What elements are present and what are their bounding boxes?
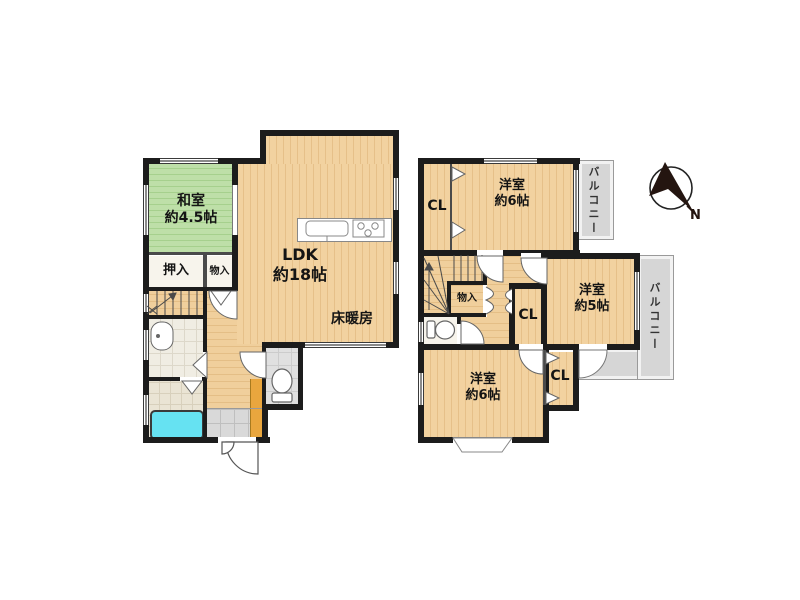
toilet-icon-1f (272, 369, 292, 402)
label-yoshitsu-top: 洋室約6帖 (462, 178, 562, 210)
door-arc-yoshitsu-top (477, 256, 503, 282)
bifold-door-monoire-2f (486, 287, 494, 314)
door-wedge-bathroom (182, 381, 202, 394)
door-arc-toilet-2f (461, 321, 484, 344)
label-oshiire: 押入 (149, 263, 203, 279)
compass-icon: N (649, 162, 701, 223)
door-arc-balcony (579, 350, 607, 378)
label-closet-bottom: CL (545, 368, 575, 385)
washbasin-icon (151, 322, 173, 350)
compass-north-label: N (690, 208, 701, 223)
kitchen-sink-icon (306, 221, 348, 241)
toilet-icon-2f (427, 321, 455, 339)
vector-overlay: N (0, 0, 800, 600)
door-arc-yoshitsu-mid (521, 258, 547, 284)
label-washitsu: 和室約4.5帖 (150, 193, 232, 227)
label-yoshitsu-bottom: 洋室約6帖 (433, 372, 533, 404)
label-closet-top: CL (422, 198, 452, 215)
door-arc-toilet-1f (240, 352, 266, 378)
bay-window (453, 438, 512, 452)
stove-icon (353, 220, 384, 237)
label-yoshitsu-mid: 洋室約5帖 (542, 283, 642, 315)
label-floor-heating: 床暖房 (320, 311, 384, 328)
floor-plan-canvas: N 和室約4.5帖 LDK約18帖 床暖房 押入 物入 CL 洋室約6帖 バルコ… (0, 0, 800, 600)
label-balcony-right: バルコニー (646, 282, 662, 356)
door-arc-yoshitsu-bottom (519, 350, 543, 374)
stairs-1f-treads (147, 291, 197, 315)
door-arc-entrance (222, 442, 258, 474)
label-monoire-1f: 物入 (206, 266, 233, 278)
label-balcony-top: バルコニー (585, 166, 601, 236)
label-ldk: LDK約18帖 (250, 245, 350, 284)
label-monoire-2f: 物入 (451, 293, 483, 305)
bifold-door-closet-mid (506, 289, 513, 314)
label-closet-mid: CL (513, 307, 543, 324)
door-wedge-washroom (193, 352, 207, 378)
